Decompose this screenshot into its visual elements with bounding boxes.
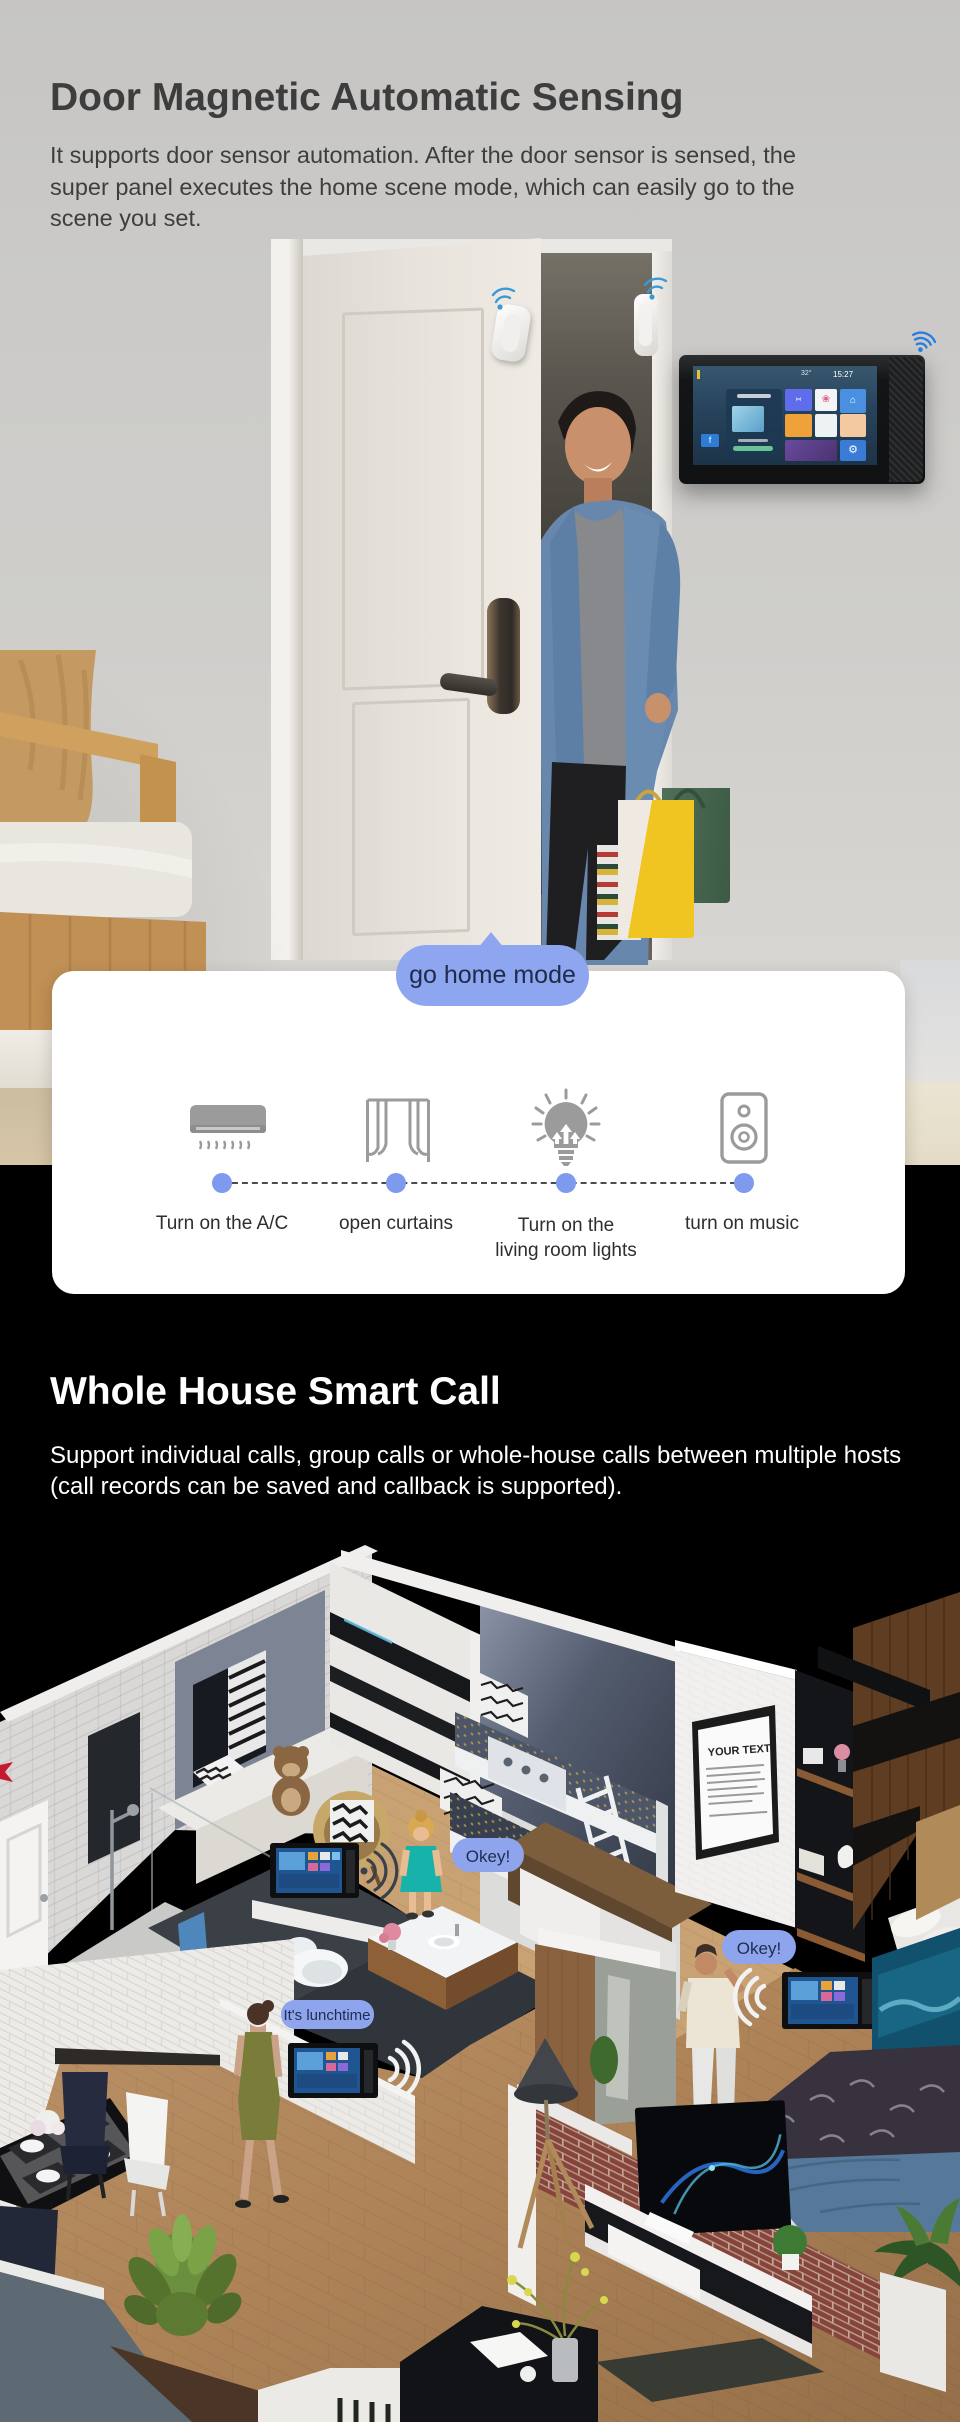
svg-text:Okey!: Okey! [466, 1847, 510, 1866]
svg-text:It's lunchtime: It's lunchtime [283, 2007, 370, 2024]
svg-text:Okey!: Okey! [737, 1939, 781, 1958]
